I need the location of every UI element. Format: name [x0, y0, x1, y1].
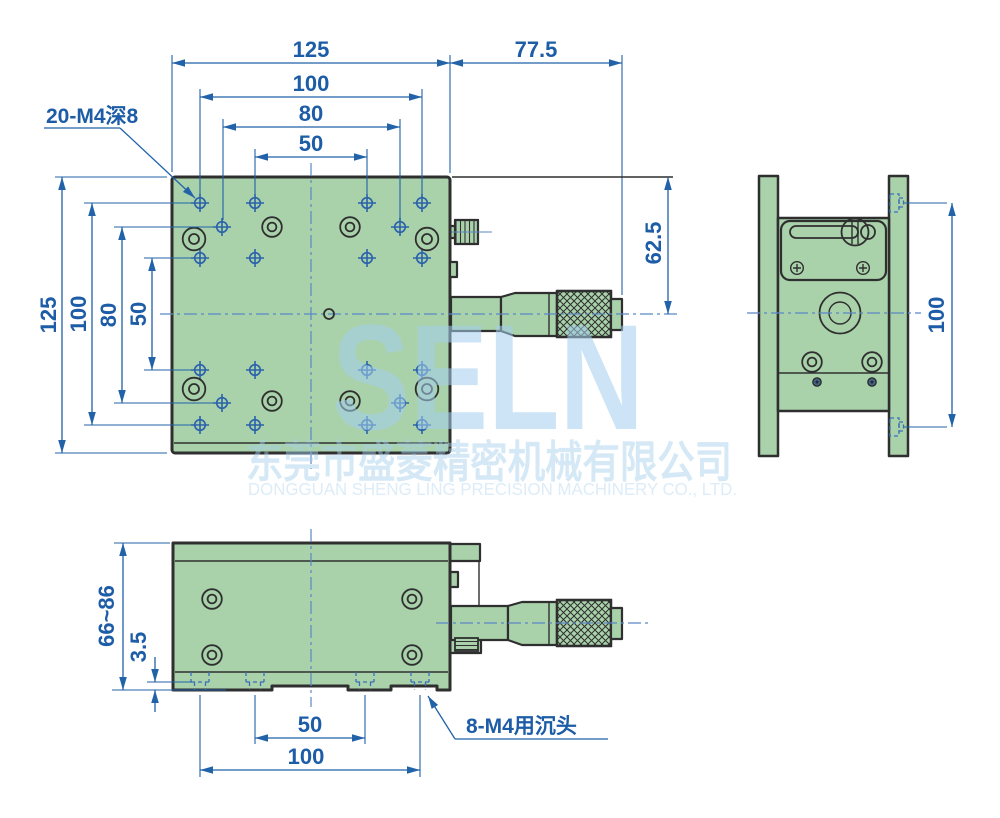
dim-50-front: 50 — [298, 712, 322, 737]
dim-100-side: 100 — [924, 297, 949, 334]
dim-50-h: 50 — [299, 131, 323, 156]
engineering-drawing-page: 125 77.5 100 80 50 125 100 80 50 62.5 20… — [0, 0, 1000, 818]
dim-62-5: 62.5 — [641, 222, 666, 265]
watermark-company-en: DONGGUAN SHENG LING PRECISION MACHINERY … — [248, 479, 737, 499]
dim-66-86: 66~86 — [94, 585, 119, 647]
dim-100-v: 100 — [66, 296, 91, 333]
micrometer-front — [451, 600, 622, 651]
dim-80-h: 80 — [299, 101, 323, 126]
top-plate-edge — [759, 176, 778, 456]
hole-callout-front: 8-M4用沉头 — [428, 696, 608, 739]
set-screw — [813, 378, 821, 386]
dim-80-v: 80 — [96, 303, 121, 327]
dim-50-v: 50 — [126, 302, 151, 326]
watermark-logo: SELN — [332, 293, 644, 461]
side-view: 100 — [747, 176, 952, 456]
dim-100-h: 100 — [293, 71, 330, 96]
dim-100-front: 100 — [288, 744, 325, 769]
set-screw — [868, 378, 876, 386]
dim-3-5: 3.5 — [126, 632, 151, 663]
side-tab — [450, 262, 457, 277]
front-view: 66~86 3.5 50 100 8-M4用沉头 — [94, 529, 648, 777]
hole-note-label: 20-M4深8 — [46, 105, 139, 128]
dim-125-v: 125 — [36, 297, 61, 334]
technical-drawing: 125 77.5 100 80 50 125 100 80 50 62.5 20… — [0, 0, 1000, 818]
hole-note-label: 8-M4用沉头 — [466, 715, 577, 738]
bracket-arm — [450, 544, 480, 561]
dim-125-h: 125 — [293, 37, 330, 62]
dim-77-5: 77.5 — [515, 37, 558, 62]
base-plate-edge — [889, 176, 908, 456]
